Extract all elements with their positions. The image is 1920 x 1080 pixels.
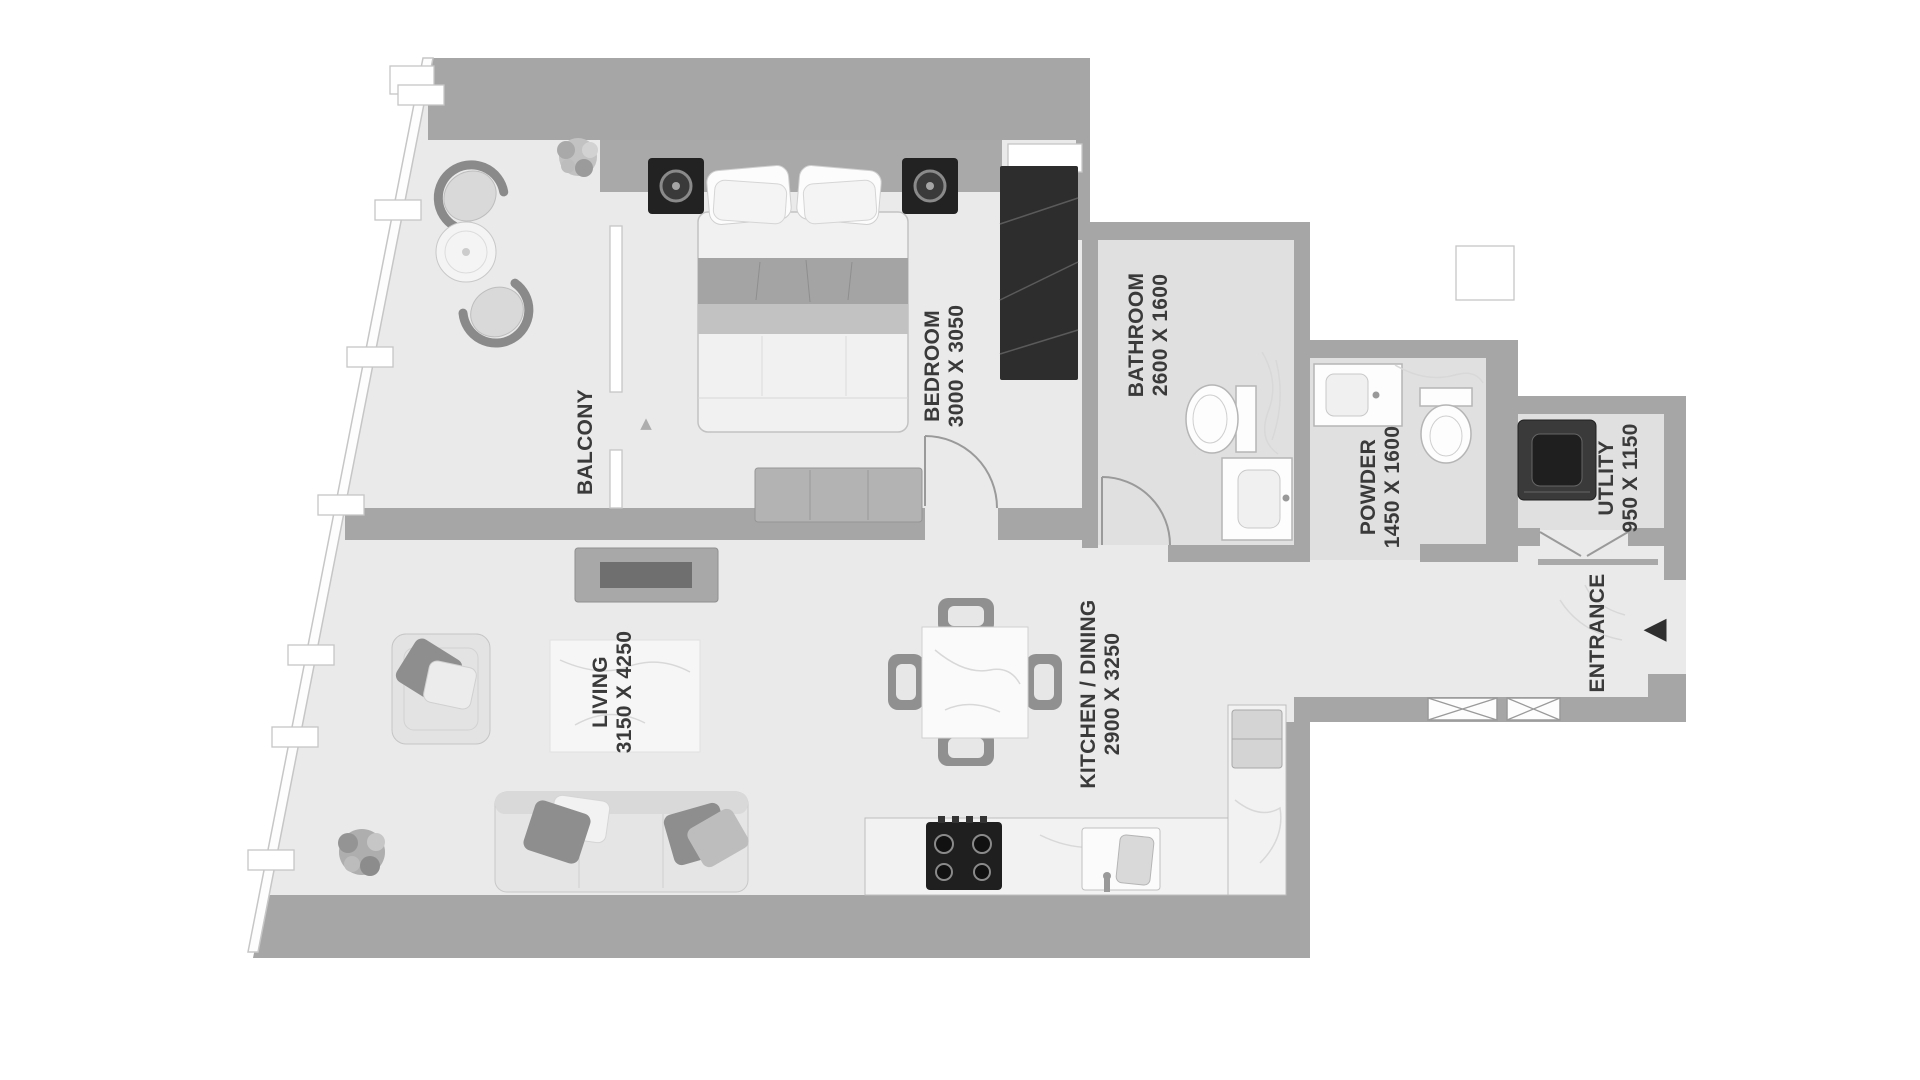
nightstand-right — [902, 158, 958, 214]
tv-console — [575, 548, 718, 602]
balcony-divider-glass-upper — [610, 226, 622, 392]
bedroom-label: BEDROOM 3000 X 3050 — [921, 305, 968, 427]
hall-stub-wall — [998, 508, 1090, 540]
shaft-box — [1507, 698, 1560, 720]
floor-plan-drawing: ▲ — [0, 0, 1920, 1080]
console-screen — [600, 562, 692, 588]
window-mullion-tick — [398, 85, 444, 105]
entrance-label: ENTRANCE — [1586, 573, 1609, 692]
room-name: ENTRANCE — [1586, 573, 1609, 692]
sink-basin — [1326, 374, 1368, 416]
wardrobe — [1000, 166, 1078, 380]
dining-chair-inner — [948, 738, 984, 758]
room-name: BEDROOM — [921, 310, 944, 422]
room-dims: 1450 X 1600 — [1381, 426, 1404, 548]
sink-faucet — [1104, 878, 1110, 892]
dining-chair-inner — [896, 664, 916, 700]
sofa — [495, 792, 752, 892]
hob-knob — [966, 816, 973, 823]
double-bed — [698, 165, 908, 432]
washing-machine — [1518, 420, 1596, 500]
plant-foliage — [561, 159, 575, 173]
bed-pillow — [803, 180, 878, 225]
lamp-center — [926, 182, 934, 190]
balcony-table — [436, 222, 496, 282]
outside-column — [1456, 246, 1514, 300]
sink-basin — [1116, 834, 1155, 885]
bathroom-vanity — [1222, 458, 1292, 540]
hob-knob — [980, 816, 987, 823]
powder-label: POWDER 1450 X 1600 — [1357, 426, 1404, 548]
powder-bottom-stub — [1420, 544, 1502, 562]
bedroom-dresser — [755, 468, 922, 522]
toilet-tank — [1420, 388, 1472, 406]
powder-top-wall — [1294, 340, 1502, 358]
hob-burner — [936, 864, 952, 880]
bathroom-top-wall — [1076, 222, 1310, 240]
cooktop-hob — [926, 816, 1002, 890]
bathroom-label: BATHROOM 2600 X 1600 — [1125, 273, 1172, 398]
top-wall — [428, 58, 1090, 140]
toilet-bowl — [1421, 405, 1471, 463]
utility-threshold — [1538, 559, 1658, 565]
bathroom-toilet — [1186, 385, 1256, 453]
vanity-basin — [1238, 470, 1280, 528]
window-mullion-tick — [288, 645, 334, 665]
floor-plan-page: ▲ — [0, 0, 1920, 1080]
dining-chair-inner — [948, 606, 984, 626]
room-name: POWDER — [1357, 439, 1380, 535]
armchair — [392, 634, 490, 744]
powder-toilet — [1420, 388, 1472, 463]
plant-foliage — [582, 142, 598, 158]
utility-door-stub-left — [1502, 528, 1540, 546]
bathroom-bottom-wall — [1168, 545, 1294, 562]
bathroom-left-wall — [1082, 240, 1098, 548]
plant-foliage — [344, 856, 360, 872]
room-dims: 3000 X 3050 — [945, 305, 968, 427]
right-wall-upper — [1664, 396, 1686, 580]
dining-table — [922, 627, 1028, 738]
plant-foliage — [360, 856, 380, 876]
powder-sink — [1314, 364, 1402, 426]
hob-knob — [952, 816, 959, 823]
bed-pillow — [713, 180, 788, 225]
sink-faucet — [1373, 392, 1380, 399]
hob-burner — [935, 835, 953, 853]
entrance-arrow-icon: ◀ — [1643, 611, 1666, 646]
room-dims: 2900 X 3250 — [1101, 633, 1124, 755]
nightstand-left — [648, 158, 704, 214]
shaft-box — [1428, 698, 1497, 720]
hob-body — [926, 822, 1002, 890]
room-name: UTLITY — [1595, 440, 1618, 515]
balcony-divider-glass-lower — [610, 450, 622, 508]
dresser-body — [755, 468, 922, 522]
room-name: BATHROOM — [1125, 273, 1148, 398]
window-mullion-tick — [248, 850, 294, 870]
dining-chair-inner — [1034, 664, 1054, 700]
balcony-label: BALCONY — [574, 389, 597, 495]
vanity-faucet — [1283, 495, 1290, 502]
hob-burner — [974, 864, 990, 880]
bathroom-powder-wall — [1294, 222, 1310, 562]
kitchen-sink — [1082, 828, 1160, 892]
window-mullion-tick — [272, 727, 318, 747]
table-center — [462, 248, 470, 256]
room-dims: 3150 X 4250 — [613, 631, 636, 753]
window-mullion-tick — [347, 347, 393, 367]
room-name: BALCONY — [574, 389, 597, 495]
room-dims: 2600 X 1600 — [1149, 274, 1172, 396]
wardrobe-body — [1000, 166, 1078, 380]
hob-knob — [938, 816, 945, 823]
lamp-center — [672, 182, 680, 190]
balcony-door-arrow-icon: ▲ — [640, 414, 652, 432]
toilet-tank — [1236, 386, 1256, 452]
bottom-wall — [253, 895, 1310, 958]
plant-foliage — [557, 141, 575, 159]
utility-top-wall — [1486, 396, 1686, 414]
room-name: KITCHEN / DINING — [1077, 599, 1100, 788]
hob-burner — [973, 835, 991, 853]
sink-faucet-head — [1103, 872, 1111, 880]
plant-foliage — [338, 833, 358, 853]
window-mullion-tick — [375, 200, 421, 220]
washer-door — [1532, 434, 1582, 486]
bed-blanket-fold — [698, 304, 908, 334]
window-mullion-tick — [318, 495, 364, 515]
room-name: LIVING — [589, 656, 612, 728]
room-dims: 950 X 1150 — [1619, 423, 1642, 532]
plant-foliage — [367, 833, 385, 851]
bed-blanket — [698, 258, 908, 304]
plant-foliage — [575, 159, 593, 177]
